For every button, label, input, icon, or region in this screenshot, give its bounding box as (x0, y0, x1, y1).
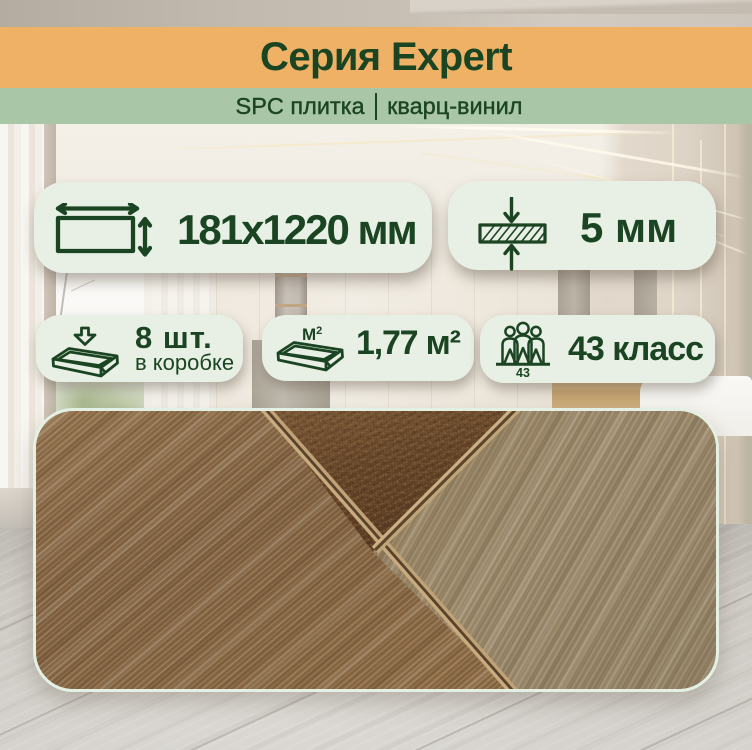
svg-text:М2: М2 (302, 325, 322, 344)
svg-text:43: 43 (516, 366, 530, 380)
